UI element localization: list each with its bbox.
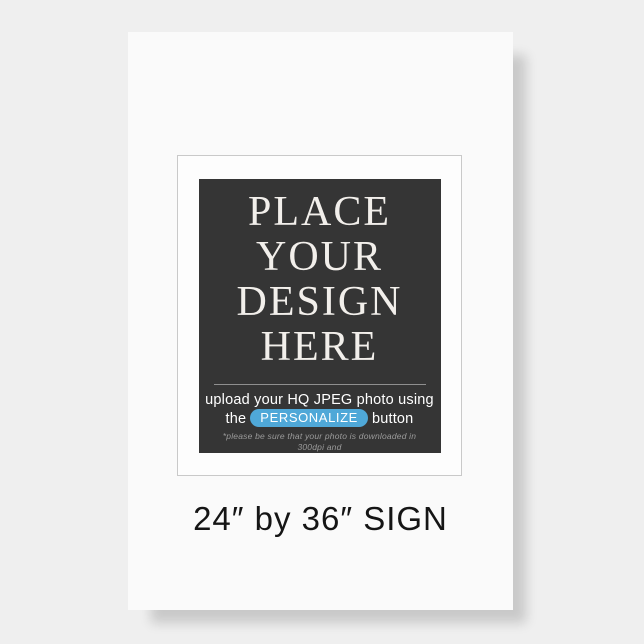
divider-line (214, 384, 426, 385)
placeholder-headline-line: YOUR (199, 235, 441, 280)
sign-size-label: 24″ by 36″ SIGN (128, 500, 513, 538)
instruction-prefix: the (226, 411, 247, 427)
upload-instruction-line-1: upload your HQ JPEG photo using (199, 391, 441, 409)
placeholder-headline-line: DESIGN (199, 280, 441, 325)
fine-print: *please be sure that your photo is downl… (212, 431, 427, 453)
placeholder-headline-line: PLACE (199, 190, 441, 235)
upload-instructions: upload your HQ JPEG photo using thePERSO… (199, 391, 441, 428)
personalize-button-pill: PERSONALIZE (250, 409, 368, 427)
design-area-frame: PLACE YOUR DESIGN HERE upload your HQ JP… (177, 155, 462, 476)
fine-print-line-1: *please be sure that your photo is downl… (212, 431, 427, 453)
upload-instruction-line-2: thePERSONALIZEbutton (199, 409, 441, 428)
poster-sheet: PLACE YOUR DESIGN HERE upload your HQ JP… (128, 32, 513, 610)
placeholder-headline: PLACE YOUR DESIGN HERE (199, 190, 441, 370)
design-placeholder-panel: PLACE YOUR DESIGN HERE upload your HQ JP… (199, 179, 441, 453)
instruction-suffix: button (372, 411, 414, 427)
placeholder-headline-line: HERE (199, 325, 441, 370)
mockup-scene: PLACE YOUR DESIGN HERE upload your HQ JP… (0, 0, 644, 644)
